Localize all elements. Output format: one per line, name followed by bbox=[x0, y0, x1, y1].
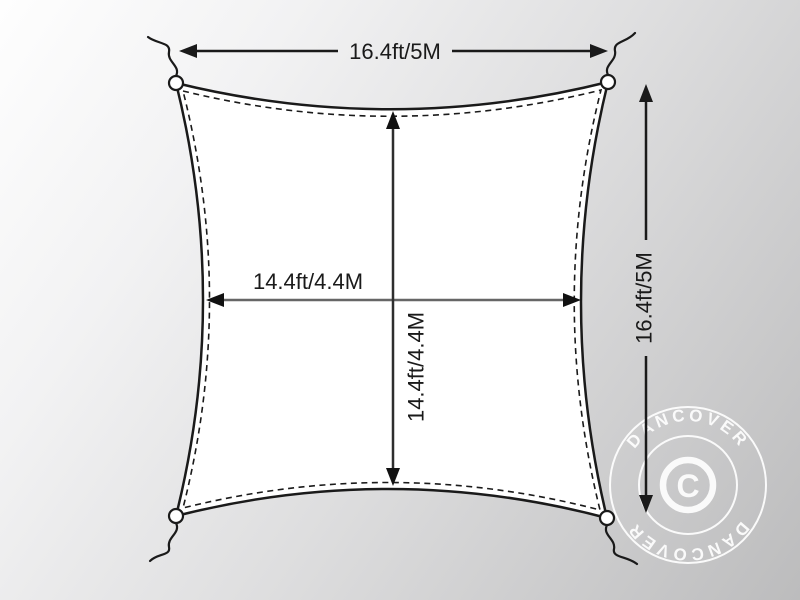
dimension-top-width: 16.4ft/5M bbox=[179, 39, 608, 64]
corner-ring-top-right bbox=[601, 75, 615, 89]
inner-height-label: 14.4ft/4.4M bbox=[404, 312, 429, 422]
watermark-brand-bottom: DANCOVER bbox=[623, 518, 753, 564]
shade-sail-dimension-diagram: C DANCOVER DANCOVER bbox=[0, 0, 800, 600]
arrowhead-right-icon bbox=[590, 44, 608, 58]
rope-top-left bbox=[148, 37, 177, 76]
side-height-label: 16.4ft/5M bbox=[632, 252, 657, 344]
corner-ring-bottom-right bbox=[600, 511, 614, 525]
diagram-canvas: C DANCOVER DANCOVER bbox=[0, 0, 800, 600]
copyright-symbol: C bbox=[676, 468, 699, 504]
arrowhead-down-icon bbox=[639, 495, 653, 513]
inner-width-label: 14.4ft/4.4M bbox=[253, 269, 363, 294]
corner-ring-bottom-left bbox=[169, 509, 183, 523]
dancover-watermark-logo: C DANCOVER DANCOVER bbox=[610, 406, 766, 565]
rope-bottom-left bbox=[150, 523, 177, 561]
arrowhead-up-icon bbox=[639, 84, 653, 102]
top-width-label: 16.4ft/5M bbox=[349, 39, 441, 64]
rope-top-right bbox=[607, 33, 635, 75]
arrowhead-left-icon bbox=[179, 44, 197, 58]
corner-ring-top-left bbox=[169, 76, 183, 90]
watermark-brand-top: DANCOVER bbox=[623, 406, 753, 452]
